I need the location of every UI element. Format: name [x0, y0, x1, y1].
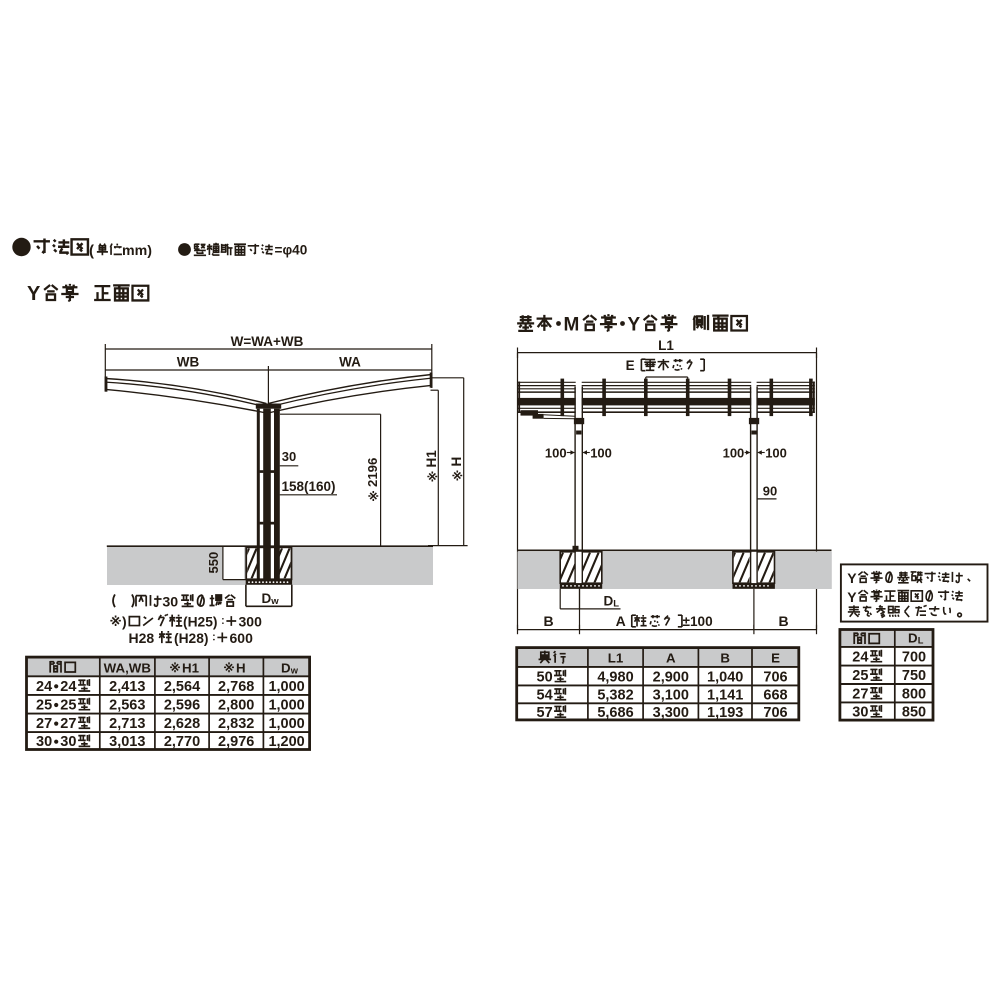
svg-text:2196: 2196 [365, 458, 380, 487]
svg-text:25: 25 [36, 698, 52, 714]
svg-text:706: 706 [763, 669, 787, 685]
svg-text:100: 100 [545, 446, 567, 461]
svg-text:600: 600 [230, 630, 254, 646]
svg-text:w: w [290, 665, 299, 675]
svg-text:57: 57 [537, 705, 553, 721]
svg-text:B: B [779, 613, 789, 629]
svg-text:2,800: 2,800 [218, 698, 254, 714]
svg-text:2,628: 2,628 [164, 716, 200, 732]
svg-text:30: 30 [36, 734, 52, 750]
svg-text:24: 24 [60, 679, 76, 695]
svg-text:100: 100 [723, 446, 745, 461]
svg-text:100: 100 [590, 446, 612, 461]
svg-text:2,413: 2,413 [109, 679, 145, 695]
svg-text:Y: Y [628, 314, 641, 335]
svg-text:3,013: 3,013 [109, 734, 145, 750]
svg-text:mm): mm) [122, 243, 152, 259]
svg-text:3,100: 3,100 [653, 688, 689, 704]
svg-text:700: 700 [902, 650, 926, 666]
svg-text:Y: Y [27, 283, 41, 305]
svg-text:A: A [616, 613, 626, 629]
svg-text:5,382: 5,382 [597, 688, 633, 704]
svg-text:2,768: 2,768 [218, 679, 254, 695]
svg-text:L: L [613, 599, 619, 610]
svg-text:WB: WB [177, 355, 200, 370]
svg-text:H1: H1 [424, 450, 439, 468]
svg-text:1,000: 1,000 [268, 698, 304, 714]
svg-text:1,000: 1,000 [268, 716, 304, 732]
svg-text:30: 30 [282, 449, 296, 464]
svg-text:1,193: 1,193 [707, 705, 743, 721]
svg-text:2,832: 2,832 [218, 716, 254, 732]
svg-text:750: 750 [902, 668, 926, 684]
svg-text:30: 30 [60, 734, 76, 750]
svg-text:50: 50 [537, 669, 553, 685]
svg-text:D: D [604, 594, 614, 609]
svg-text:H1: H1 [182, 660, 200, 675]
svg-text:D: D [281, 660, 291, 675]
svg-text:Y: Y [847, 589, 857, 605]
svg-text:=φ40: =φ40 [275, 243, 308, 258]
svg-text:668: 668 [763, 688, 787, 704]
svg-text:100: 100 [765, 446, 787, 461]
svg-text:2,976: 2,976 [218, 734, 254, 750]
svg-text:H28: H28 [129, 630, 155, 646]
svg-text:24: 24 [852, 650, 868, 666]
svg-text:2,596: 2,596 [164, 698, 200, 714]
svg-text:25: 25 [852, 668, 868, 684]
svg-text:27: 27 [36, 716, 52, 732]
svg-text:A: A [666, 651, 676, 666]
svg-text:1,141: 1,141 [707, 688, 743, 704]
svg-text:5,686: 5,686 [597, 705, 633, 721]
svg-text:25: 25 [60, 698, 76, 714]
svg-text:(H25): (H25) [183, 614, 218, 629]
svg-text:H: H [449, 457, 464, 467]
svg-text:W=WA+WB: W=WA+WB [231, 334, 304, 349]
svg-text:24: 24 [36, 679, 52, 695]
svg-text:300: 300 [239, 613, 263, 629]
svg-text:): ) [122, 613, 127, 629]
svg-text:27: 27 [60, 716, 76, 732]
svg-text:(H28): (H28) [174, 631, 209, 646]
svg-text:2,713: 2,713 [109, 716, 145, 732]
svg-text:L: L [918, 635, 924, 645]
svg-text:2,563: 2,563 [109, 698, 145, 714]
svg-text:30: 30 [162, 594, 178, 610]
svg-text:w: w [270, 596, 279, 607]
svg-text:(: ( [89, 243, 94, 260]
svg-text:30: 30 [852, 705, 868, 721]
svg-text:WA: WA [339, 355, 361, 370]
svg-text:B: B [720, 651, 730, 666]
svg-text:1,040: 1,040 [707, 669, 743, 685]
svg-text:E: E [626, 358, 635, 373]
svg-text:M: M [564, 314, 580, 335]
svg-text:4,980: 4,980 [597, 669, 633, 685]
svg-text:850: 850 [902, 705, 926, 721]
svg-text:E: E [771, 651, 780, 666]
svg-text:2,900: 2,900 [653, 669, 689, 685]
svg-text:D: D [908, 630, 918, 645]
svg-text:2,770: 2,770 [164, 734, 200, 750]
svg-text:B: B [544, 613, 554, 629]
svg-text:L1: L1 [658, 338, 674, 353]
svg-text:D: D [262, 591, 272, 606]
svg-text:800: 800 [902, 686, 926, 702]
svg-text:3,300: 3,300 [653, 705, 689, 721]
svg-text:Y: Y [847, 570, 857, 586]
svg-text:158(160): 158(160) [282, 479, 336, 494]
svg-text:L1: L1 [608, 651, 624, 666]
svg-text:H: H [236, 660, 246, 675]
svg-text:±100: ±100 [683, 614, 713, 629]
svg-text:1,000: 1,000 [268, 679, 304, 695]
svg-text:27: 27 [852, 686, 868, 702]
svg-text:550: 550 [206, 552, 221, 574]
svg-text:2,564: 2,564 [164, 679, 200, 695]
svg-text:WA,WB: WA,WB [104, 660, 151, 675]
svg-text:1,200: 1,200 [268, 734, 304, 750]
svg-text:90: 90 [763, 484, 777, 499]
svg-text:706: 706 [763, 705, 787, 721]
svg-text:54: 54 [537, 688, 553, 704]
